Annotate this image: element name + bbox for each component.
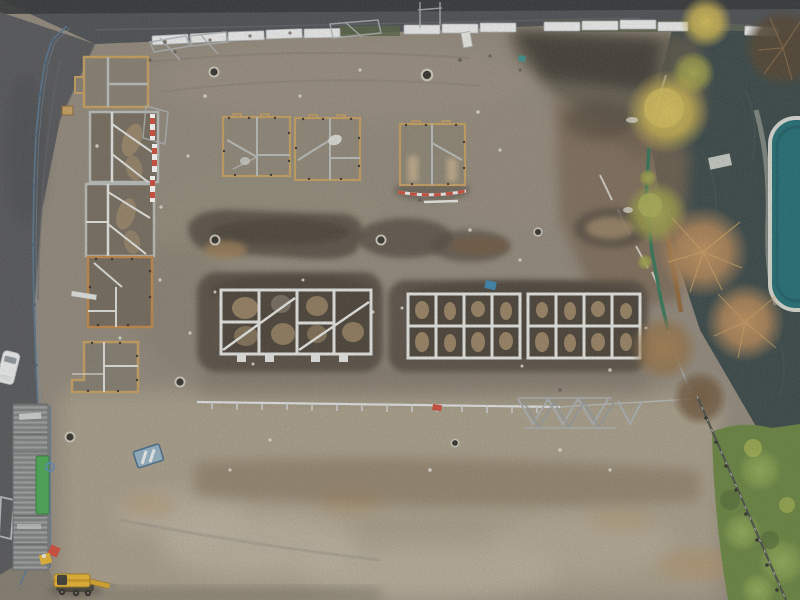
scene-canvas [0,0,800,600]
aerial-photo-construction-site [0,0,800,600]
grain-light [0,0,800,600]
